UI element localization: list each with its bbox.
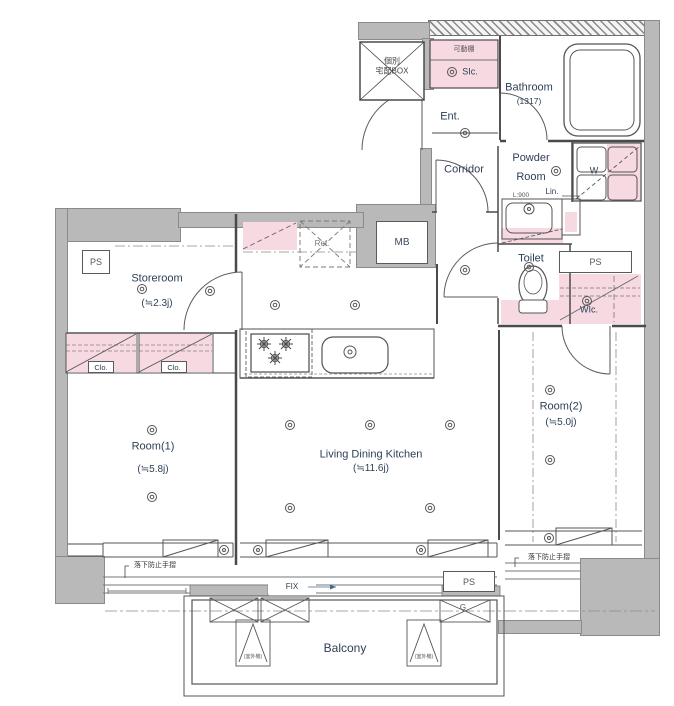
ps-right-label: PS [589,257,601,267]
movable-shelf-label: 可動棚 [454,46,475,54]
clo2-label: Clo. [167,363,180,372]
balcony-label: Balcony [324,641,367,655]
floor-plan: MB PS PS PS Clo. Clo. 個別 宅配BOX 可動棚 SIc. … [0,0,674,706]
plan-linework [0,0,674,706]
room2-label: Room(2) [540,400,583,413]
sic-label: SIc. [462,67,478,78]
vanity-sink-icon [502,196,580,243]
room1-label: Room(1) [132,440,175,453]
toilet-label: Toilet [518,252,544,265]
ps-box-right: PS [559,251,632,273]
balcony-crossed-boxes [210,598,309,622]
washing-machine-icon [573,143,641,201]
clo2-tag: Clo. [161,361,187,373]
linen-label: Lin. [546,187,559,197]
corridor-label: Corridor [444,163,484,176]
window-sill-left [190,585,268,596]
storeroom-label: Storeroom [131,272,182,285]
fix-label: FIX [286,582,298,592]
wic-label: WIc. [580,305,598,316]
kitchen-sink-icon [322,337,388,373]
kitchen-shelf-diagonal [243,223,296,249]
handrail-left-label: 落下防止手摺 [134,562,176,570]
ps-box-bottom: PS [443,571,495,592]
bathroom-label: Bathroom [505,81,553,94]
bathroom-size-label: (1317) [517,96,542,106]
room2-size-label: (≒5.0j) [545,417,576,429]
vanity-width-label: L:900 [513,192,529,200]
outdoor-unit-right-label: (室外機) [415,654,433,660]
ps-left-label: PS [90,257,102,267]
gas-meter-label: G [460,603,466,613]
wic-lines [560,276,640,322]
delivery-box-label: 個別 宅配BOX [376,56,409,75]
toilet-icon [519,266,547,313]
storeroom-size-label: (≒2.3j) [141,298,172,310]
stove-icon [246,329,312,377]
powder-room-label: Powder Room [512,152,549,184]
room2-door-icon [562,326,610,374]
room1-size-label: (≒5.8j) [137,464,168,476]
washer-label: W [590,166,599,177]
ldk-label: Living Dining Kitchen [320,448,423,461]
mb-label: MB [395,237,410,248]
ps-box-left: PS [82,250,110,274]
refrigerator-label: Ref. [315,239,330,249]
windows [103,528,642,557]
ps-bottom-label: PS [463,577,475,587]
linen-closet [562,199,580,235]
handrail-right-label: 落下防止手摺 [528,554,570,562]
mb-box: MB [376,221,428,264]
toilet-door-icon [444,243,498,297]
window-locks [220,534,554,555]
clo1-label: Clo. [94,363,107,372]
clo1-tag: Clo. [88,361,114,373]
outdoor-unit-left-label: (室外機) [244,654,262,660]
storeroom-door-icon [184,272,242,330]
ldk-size-label: (≒11.6j) [353,463,389,475]
entrance-label: Ent. [440,110,460,123]
bathtub-icon [564,44,640,136]
